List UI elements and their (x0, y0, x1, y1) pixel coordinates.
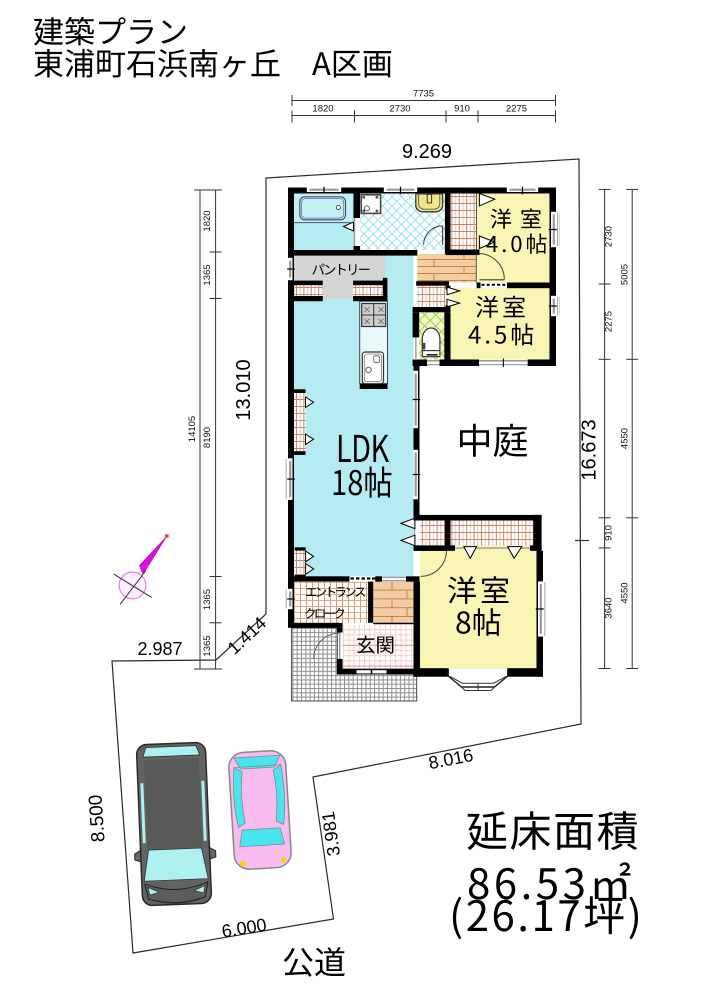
svg-text:1365: 1365 (202, 635, 213, 656)
svg-text:8190: 8190 (202, 427, 213, 448)
svg-text:6.000: 6.000 (220, 915, 268, 942)
svg-text:2275: 2275 (506, 104, 527, 115)
svg-text:1365: 1365 (202, 264, 213, 285)
svg-text:2275: 2275 (603, 311, 614, 332)
svg-text:2730: 2730 (603, 226, 614, 247)
svg-text:1820: 1820 (312, 104, 333, 115)
svg-text:1820: 1820 (202, 210, 213, 231)
svg-text:910: 910 (454, 104, 470, 115)
svg-text:2730: 2730 (389, 104, 410, 115)
svg-text:1365: 1365 (202, 589, 213, 610)
svg-text:8.016: 8.016 (427, 745, 475, 773)
svg-text:910: 910 (603, 525, 614, 541)
svg-text:4550: 4550 (619, 428, 630, 449)
svg-text:8.500: 8.500 (85, 794, 109, 843)
svg-text:3640: 3640 (603, 597, 614, 618)
svg-text:7735: 7735 (413, 89, 434, 100)
svg-text:4550: 4550 (619, 582, 630, 603)
svg-text:14105: 14105 (187, 416, 198, 442)
svg-text:5005: 5005 (619, 264, 630, 285)
svg-text:9.269: 9.269 (402, 141, 452, 163)
svg-text:2.987: 2.987 (137, 639, 182, 659)
svg-text:13.010: 13.010 (233, 359, 255, 420)
svg-text:3.981: 3.981 (318, 810, 344, 857)
svg-text:1.414: 1.414 (224, 613, 271, 658)
svg-text:16.673: 16.673 (579, 419, 601, 480)
